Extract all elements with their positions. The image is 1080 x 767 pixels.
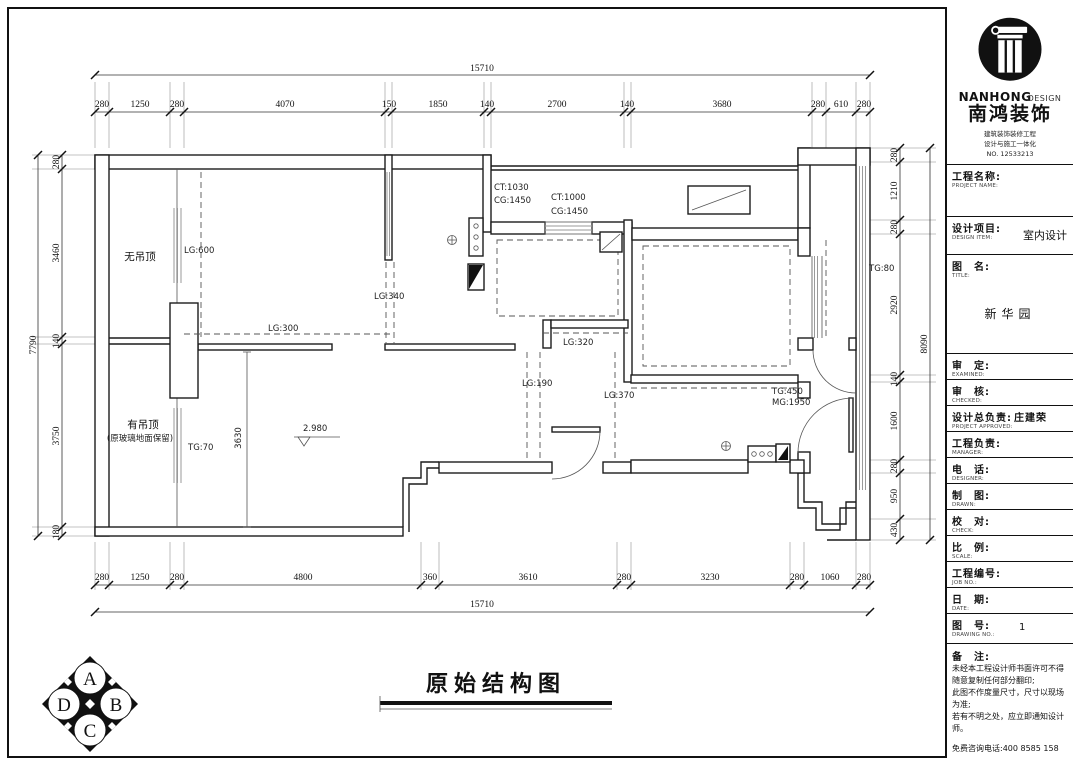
svg-text:280: 280: [811, 100, 826, 110]
svg-text:1250: 1250: [131, 573, 150, 583]
label-has-ceiling-note: (原玻璃地面保留): [107, 433, 173, 444]
field-project-name: 工程名称: PROJECT NAME:: [947, 165, 1073, 217]
dim-bottom-total: 15710: [470, 600, 494, 610]
counter-icon: [748, 446, 776, 462]
label-cg1450a: CG:1450: [494, 196, 531, 206]
svg-text:3230: 3230: [701, 573, 720, 583]
label-lg320: LG:320: [563, 338, 593, 348]
drawing-name-value: 新华园: [952, 305, 1068, 322]
label-lg300: LG:300: [268, 324, 298, 334]
svg-text:150: 150: [382, 100, 397, 110]
label-tg450: TG:450: [771, 387, 803, 397]
svg-text:3680: 3680: [713, 100, 732, 110]
label-room-dim-3630: 3630: [234, 427, 244, 449]
balcony-door: [813, 350, 856, 393]
svg-text:1600: 1600: [890, 411, 900, 430]
wedge-icon: [776, 444, 790, 462]
svg-text:280: 280: [617, 573, 632, 583]
svg-text:1210: 1210: [890, 181, 900, 200]
column-logo-icon: [974, 15, 1046, 87]
svg-text:280: 280: [52, 155, 62, 170]
svg-text:2920: 2920: [890, 295, 900, 314]
dim-top-total: 15710: [470, 64, 494, 74]
label-lg190: LG:190: [522, 379, 552, 389]
label-tg70: TG:70: [187, 443, 213, 453]
svg-text:3750: 3750: [52, 426, 62, 445]
svg-text:140: 140: [52, 334, 62, 349]
field-examined: 审 定: EXAMINED:: [947, 354, 1073, 380]
badge-letter-c: C: [84, 721, 97, 742]
svg-text:1850: 1850: [429, 100, 448, 110]
label-lg340: LG:340: [374, 292, 404, 302]
electrical-panel-icon: [469, 218, 483, 256]
svg-text:950: 950: [890, 489, 900, 504]
label-lg370: LG:370: [604, 391, 634, 401]
field-drawn: 制 图: DRAWN:: [947, 484, 1073, 510]
field-proofread: 校 对: CHECK:: [947, 510, 1073, 536]
svg-text:1250: 1250: [131, 100, 150, 110]
label-tg80: TG:80: [868, 264, 894, 274]
field-manager: 工程负责: MANAGER:: [947, 432, 1073, 458]
field-design-item: 设计项目: DESIGN ITEM: 室内设计: [947, 217, 1073, 255]
svg-text:140: 140: [890, 372, 900, 387]
dimensions-top: 15710 280 1250 280 4070 150 1850 140 270…: [91, 64, 874, 148]
badge-diamond: A B C D: [42, 656, 138, 752]
svg-text:1060: 1060: [821, 573, 840, 583]
svg-text:4800: 4800: [294, 573, 313, 583]
dimensions-right: 8090 280 1210 280 2920 140 1600 280 950 …: [870, 144, 936, 544]
entry-door: [552, 427, 600, 479]
field-title: 图 名: TITLE: 新华园: [947, 255, 1073, 355]
company-name-en: NANHONGDESIGN: [947, 91, 1073, 103]
svg-text:140: 140: [620, 100, 635, 110]
dim-right-total: 8090: [920, 334, 930, 353]
badge-letter-d: D: [57, 695, 71, 716]
svg-text:280: 280: [170, 100, 185, 110]
drawing-title-text: 原始结构图: [426, 671, 566, 697]
field-date: 日 期: DATE:: [947, 588, 1073, 614]
badge-letter-a: A: [83, 669, 97, 690]
field-drawing-no: 图 号: DRAWING NO.: 1: [947, 614, 1073, 644]
svg-text:280: 280: [790, 573, 805, 583]
design-item-value: 室内设计: [1023, 227, 1067, 243]
field-scale: 比 例: SCALE:: [947, 536, 1073, 562]
corner-shaft-icon: [468, 264, 484, 290]
svg-text:280: 280: [95, 100, 110, 110]
pillar: [170, 303, 198, 398]
svg-text:4070: 4070: [276, 100, 295, 110]
level-marker: [294, 437, 340, 446]
label-ct1000: CT:1000: [551, 193, 586, 203]
svg-text:280: 280: [857, 573, 872, 583]
svg-text:2700: 2700: [548, 100, 567, 110]
power-symbol: [448, 236, 457, 245]
ceiling-dashed-layer: [184, 172, 826, 460]
dim-left-total: 7790: [29, 335, 39, 354]
dimensions-bottom: 15710 280 1250 280 4800 360 3610 280 323…: [91, 542, 874, 616]
field-chief-designer: 设计总负责:庄建荣 PROJECT APPROVED:: [947, 406, 1073, 432]
field-job-no: 工程编号: JOB NO.:: [947, 562, 1073, 588]
cad-drawing-page: 15710 280 1250 280 4070 150 1850 140 270…: [0, 0, 1080, 767]
planter-icon: [688, 186, 750, 214]
svg-text:360: 360: [423, 573, 438, 583]
title-block: NANHONGDESIGN 南鸿装饰 建筑装饰装修工程 设计与施工一体化 NO.…: [945, 7, 1073, 758]
power-symbol-2: [722, 442, 731, 451]
label-cg1450b: CG:1450: [551, 207, 588, 217]
svg-text:180: 180: [52, 525, 62, 540]
field-telephone: 电 话: DESIGNER:: [947, 458, 1073, 484]
label-mg1950: MG:1950: [772, 398, 810, 408]
label-lg600: LG:600: [184, 246, 214, 256]
svg-text:280: 280: [890, 459, 900, 474]
svg-text:3460: 3460: [52, 243, 62, 262]
chief-designer-value: 庄建荣: [1014, 413, 1047, 424]
svg-text:280: 280: [890, 148, 900, 163]
svg-text:610: 610: [834, 100, 849, 110]
floorplan-canvas: 15710 280 1250 280 4070 150 1850 140 270…: [0, 0, 1080, 767]
notes-block: 备 注: 未经本工程设计师书面许可不得随意复制任何部分翻印; 此图不作度量尺寸，…: [947, 644, 1073, 758]
drawing-title: 原始结构图: [380, 671, 612, 712]
svg-text:280: 280: [857, 100, 872, 110]
company-name-cn: 南鸿装饰: [947, 103, 1073, 126]
label-ct1030: CT:1030: [494, 183, 529, 193]
label-has-ceiling: 有吊顶: [127, 418, 159, 431]
drawing-no-value: 1: [1019, 622, 1025, 633]
shelf-icon: [600, 232, 622, 252]
svg-text:430: 430: [890, 523, 900, 538]
label-no-ceiling: 无吊顶: [124, 251, 156, 263]
walls-layer: [95, 148, 870, 540]
svg-text:280: 280: [890, 220, 900, 235]
field-checked: 审 核: CHECKED:: [947, 380, 1073, 406]
hotline: 免费咨询电话:400 8585 158: [952, 743, 1068, 754]
svg-text:140: 140: [480, 100, 495, 110]
svg-text:280: 280: [95, 573, 110, 583]
dimensions-left: 7790 280 3460 140 3750 180: [29, 151, 95, 540]
svg-text:3610: 3610: [519, 573, 538, 583]
company-credentials: 建筑装饰装修工程 设计与施工一体化 NO. 12533213: [947, 129, 1073, 159]
badge-letter-b: B: [110, 695, 123, 716]
label-level: 2.980: [303, 424, 327, 434]
company-logo-block: NANHONGDESIGN 南鸿装饰 建筑装饰装修工程 设计与施工一体化 NO.…: [947, 7, 1073, 165]
svg-text:280: 280: [170, 573, 185, 583]
